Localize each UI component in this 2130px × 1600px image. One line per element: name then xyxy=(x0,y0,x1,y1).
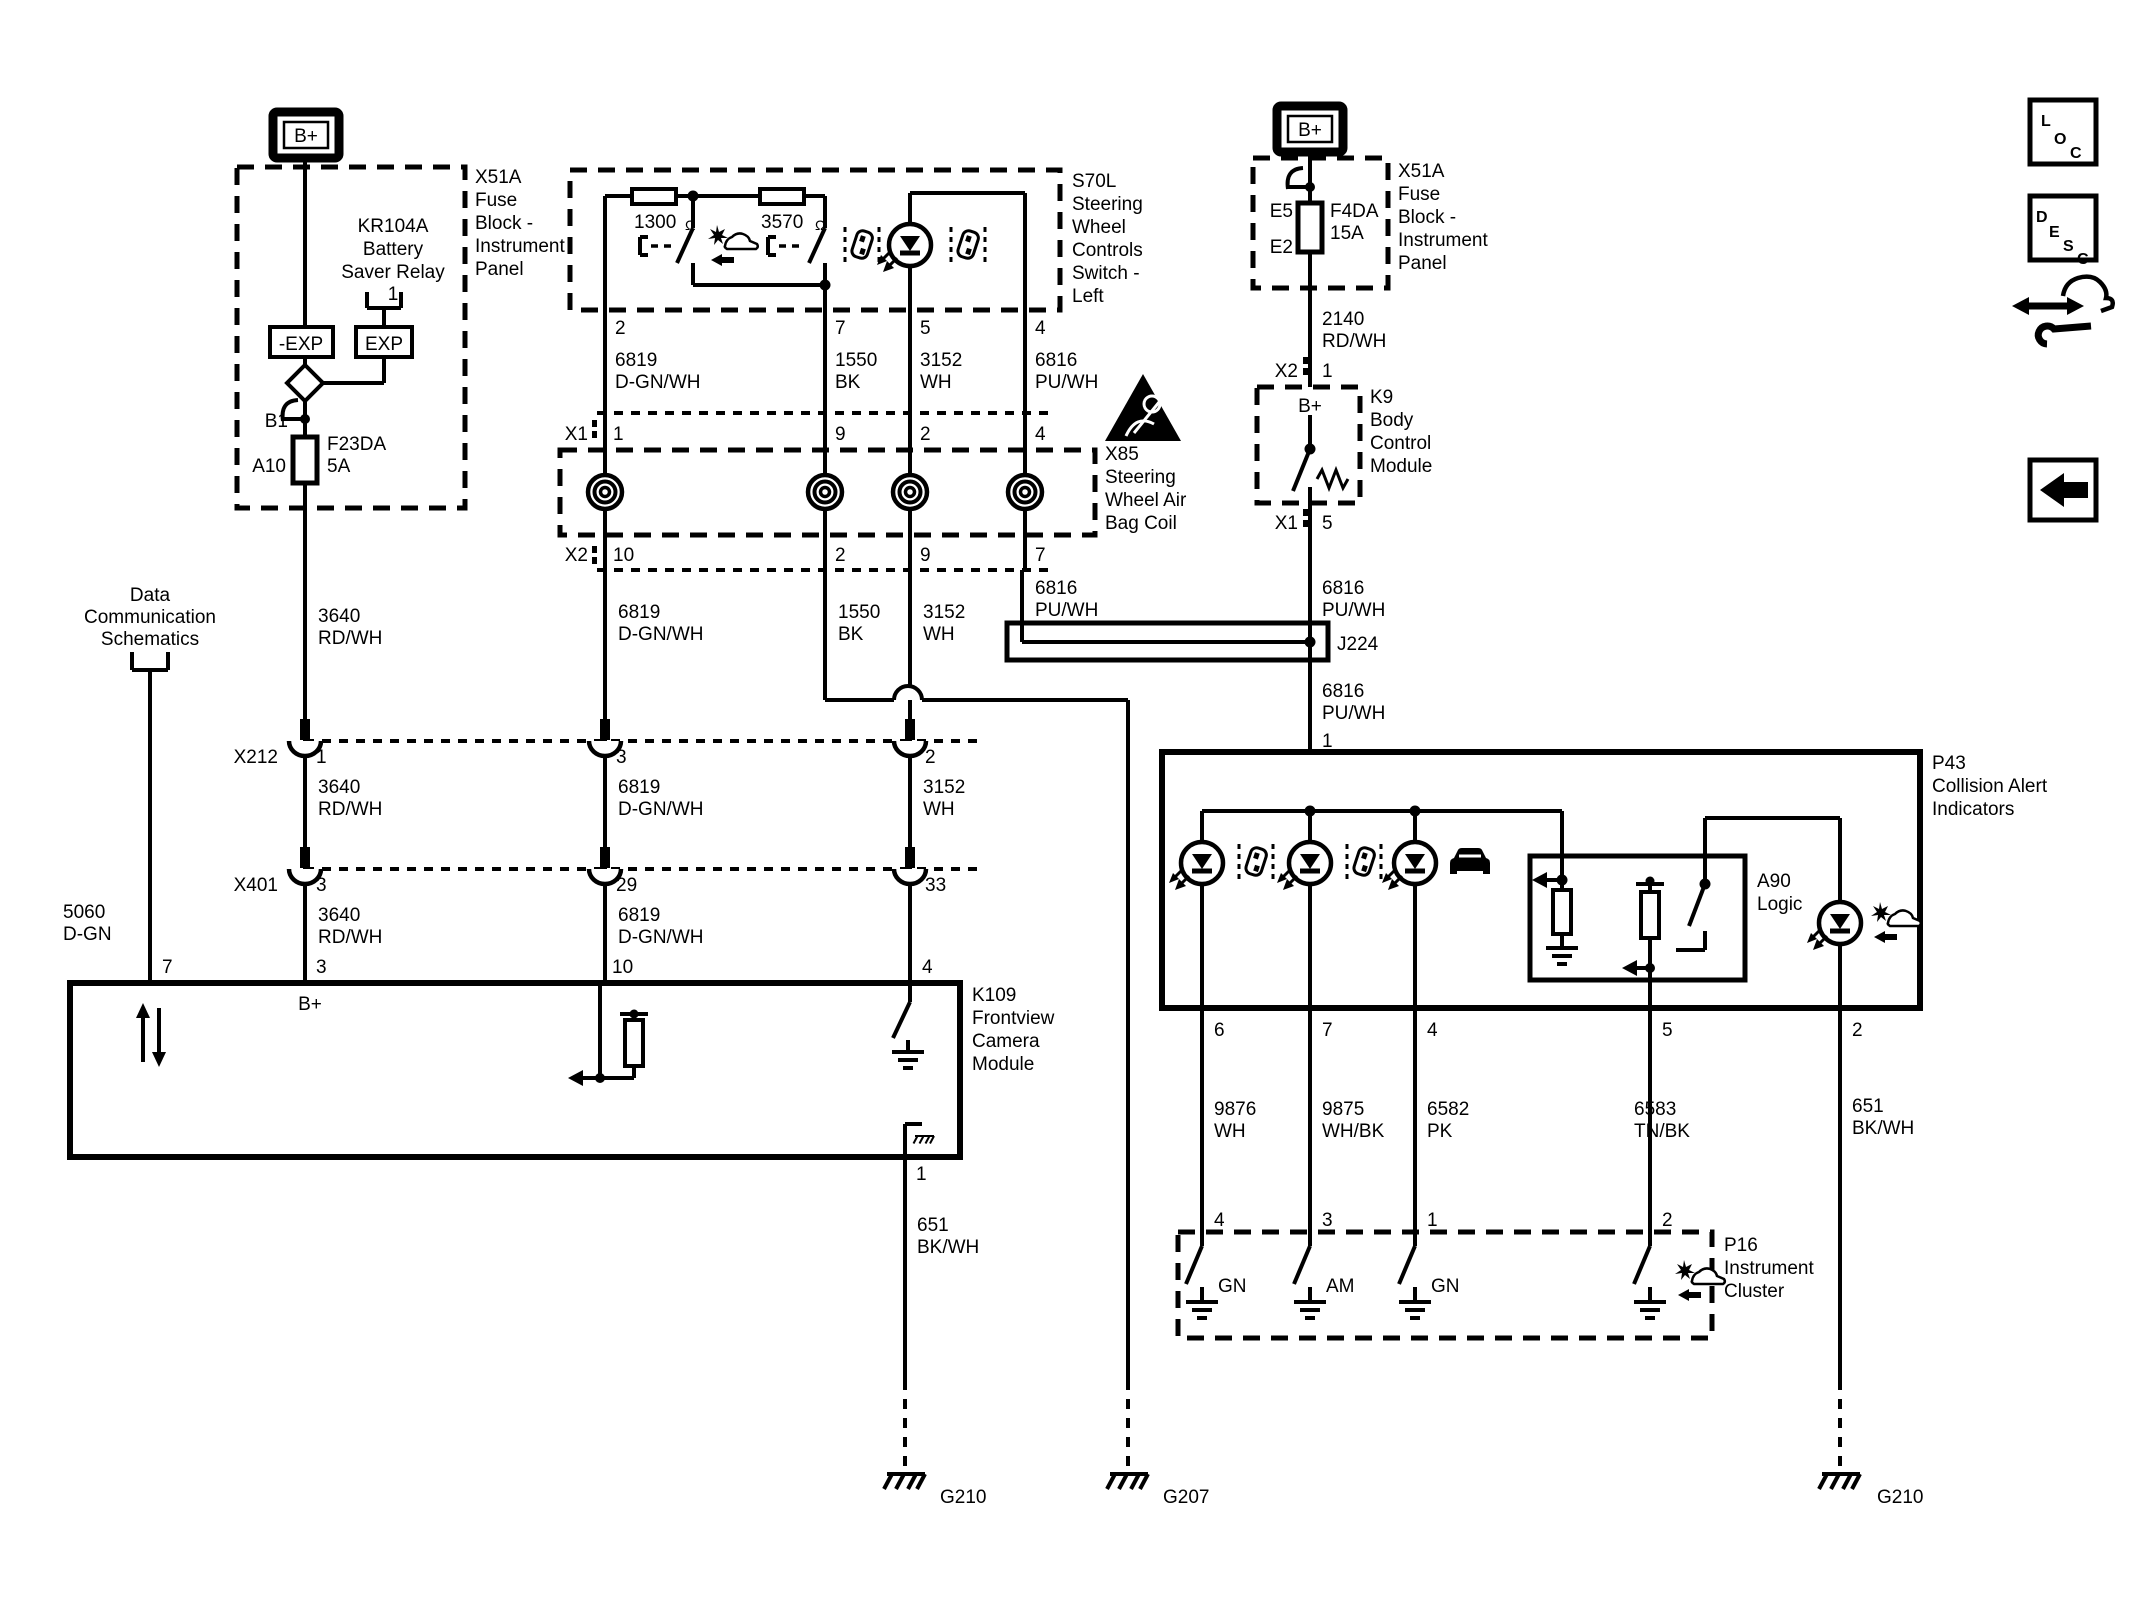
svg-text:3152: 3152 xyxy=(923,777,965,798)
svg-text:WH/BK: WH/BK xyxy=(1322,1121,1385,1142)
pin-number: 5 xyxy=(1322,513,1333,534)
wire-label: 5060 xyxy=(63,902,105,923)
svg-text:2: 2 xyxy=(920,424,931,445)
fuse-block-right-label: X51A xyxy=(1398,161,1445,182)
j224-label: J224 xyxy=(1337,634,1379,655)
wire-label: 2140 xyxy=(1322,309,1364,330)
x85-label: X85 xyxy=(1105,444,1139,465)
svg-text:33: 33 xyxy=(925,875,946,896)
svg-text:Wheel Air: Wheel Air xyxy=(1105,490,1187,511)
svg-text:Bag Coil: Bag Coil xyxy=(1105,513,1177,534)
airbag-warning-icon xyxy=(1105,374,1181,441)
pin-number: 1 xyxy=(316,747,327,768)
earth-ground-icon xyxy=(1546,948,1578,964)
k9-x2-label: X2 xyxy=(1275,361,1298,382)
x401-connector-icon xyxy=(894,847,926,884)
loc-letter: C xyxy=(2070,145,2082,162)
vehicle-ahead-icon xyxy=(1450,848,1490,874)
svg-text:WH: WH xyxy=(923,799,955,820)
fuse-name-label: F4DA xyxy=(1330,201,1379,222)
earth-ground-icon xyxy=(1634,1302,1666,1318)
relay-label: KR104A xyxy=(358,216,429,237)
svg-text:6816: 6816 xyxy=(1322,681,1364,702)
ground-g207-icon xyxy=(1107,1474,1148,1489)
x401-label: X401 xyxy=(234,875,278,896)
svg-text:Control: Control xyxy=(1370,433,1431,454)
pin-number: 4 xyxy=(1214,1210,1225,1231)
b-plus-terminal-right: B+ xyxy=(1277,106,1343,152)
fuse-pin-label: E5 xyxy=(1270,201,1293,222)
svg-text:Panel: Panel xyxy=(475,259,524,280)
b-plus-terminal-left: B+ xyxy=(273,112,339,158)
desc-letter: E xyxy=(2049,224,2060,241)
svg-text:D-GN: D-GN xyxy=(63,924,112,945)
svg-text:WH: WH xyxy=(920,372,952,393)
svg-text:6819: 6819 xyxy=(618,777,660,798)
svg-text:Module: Module xyxy=(1370,456,1432,477)
svg-text:6816: 6816 xyxy=(1035,578,1077,599)
svg-text:Collision Alert: Collision Alert xyxy=(1932,776,2048,797)
svg-text:7: 7 xyxy=(1322,1020,1333,1041)
svg-text:Module: Module xyxy=(972,1054,1034,1075)
svg-text:9: 9 xyxy=(920,545,931,566)
airbag-coil-icon xyxy=(893,475,927,509)
led-indicator-icon xyxy=(1169,842,1223,890)
svg-text:BK: BK xyxy=(838,624,864,645)
svg-text:Body: Body xyxy=(1370,410,1414,431)
pin-number: 2 xyxy=(615,318,626,339)
svg-text:7: 7 xyxy=(1035,545,1046,566)
svg-text:PU/WH: PU/WH xyxy=(1035,600,1098,621)
svg-text:D-GN/WH: D-GN/WH xyxy=(615,372,700,393)
ground-g210-left-icon xyxy=(884,1474,925,1489)
svg-text:Fuse: Fuse xyxy=(1398,184,1440,205)
switch-actuator-icon xyxy=(640,237,673,255)
svg-text:Indicators: Indicators xyxy=(1932,799,2014,820)
collision-alert-icon xyxy=(708,225,758,266)
svg-text:2: 2 xyxy=(835,545,846,566)
x212-label: X212 xyxy=(234,747,278,768)
b-plus-label: B+ xyxy=(1298,120,1322,141)
earth-ground-icon xyxy=(1399,1302,1431,1318)
fuse-rating-label: 15A xyxy=(1330,223,1364,244)
j224-junction-dot xyxy=(1305,637,1316,648)
wiring-diagram: B+ B+ -EXP EXP xyxy=(0,0,2130,1595)
svg-text:4: 4 xyxy=(1035,424,1046,445)
earth-ground-icon xyxy=(1186,1302,1218,1318)
svg-text:1: 1 xyxy=(1427,1210,1438,1231)
svg-text:5: 5 xyxy=(920,318,931,339)
svg-text:WH: WH xyxy=(1214,1121,1246,1142)
svg-text:Saver Relay: Saver Relay xyxy=(341,262,445,283)
airbag-coil-icon xyxy=(808,475,842,509)
svg-text:D-GN/WH: D-GN/WH xyxy=(618,624,703,645)
neg-exp-label: -EXP xyxy=(279,334,323,355)
svg-text:RD/WH: RD/WH xyxy=(318,927,382,948)
k9-internals xyxy=(1293,444,1348,492)
k109-label: K109 xyxy=(972,985,1016,1006)
svg-text:Frontview: Frontview xyxy=(972,1008,1055,1029)
x2-label: X2 xyxy=(565,545,588,566)
svg-text:RD/WH: RD/WH xyxy=(1322,331,1386,352)
svg-text:6819: 6819 xyxy=(618,905,660,926)
collision-alert-icon xyxy=(1871,902,1921,943)
desc-letter: S xyxy=(2063,238,2074,255)
pin-number: 7 xyxy=(162,957,173,978)
svg-text:Schematics: Schematics xyxy=(101,629,199,650)
svg-text:Wheel: Wheel xyxy=(1072,217,1126,238)
earth-ground-icon xyxy=(1294,1302,1326,1318)
k109-box xyxy=(70,983,960,1157)
p16-label: P16 xyxy=(1724,1235,1758,1256)
resistor-1300 xyxy=(632,189,676,204)
svg-text:Steering: Steering xyxy=(1105,467,1176,488)
svg-text:3: 3 xyxy=(1322,1210,1333,1231)
b-plus-label: B+ xyxy=(1298,396,1322,417)
ground-g210-right-icon xyxy=(1819,1474,1860,1489)
desc-button[interactable]: D E S C xyxy=(2030,196,2096,268)
p43-label: P43 xyxy=(1932,753,1966,774)
svg-text:TN/BK: TN/BK xyxy=(1634,1121,1690,1142)
svg-text:Camera: Camera xyxy=(972,1031,1040,1052)
svg-text:D-GN/WH: D-GN/WH xyxy=(618,927,703,948)
switch-actuator-icon xyxy=(768,237,801,255)
svg-text:5: 5 xyxy=(1662,1020,1673,1041)
k109-internals xyxy=(136,1003,934,1144)
svg-text:3: 3 xyxy=(316,875,327,896)
svg-text:4: 4 xyxy=(1035,318,1046,339)
svg-text:Ω: Ω xyxy=(685,217,695,233)
collision-alert-icon xyxy=(1675,1260,1725,1301)
svg-text:D-GN/WH: D-GN/WH xyxy=(618,799,703,820)
wire-hop xyxy=(894,686,922,700)
svg-text:9875: 9875 xyxy=(1322,1099,1364,1120)
data-comm-label: Data xyxy=(130,585,171,606)
svg-text:1550: 1550 xyxy=(838,602,880,623)
segment-label: GN xyxy=(1218,1276,1247,1297)
svg-text:PK: PK xyxy=(1427,1121,1453,1142)
svg-text:2: 2 xyxy=(1852,1020,1863,1041)
wire-label: 6819 xyxy=(618,602,660,623)
desc-letter: D xyxy=(2036,209,2048,226)
lane-departure-icon xyxy=(1347,844,1381,880)
svg-text:E2: E2 xyxy=(1270,237,1293,258)
ground-label: G210 xyxy=(940,1487,986,1508)
lane-departure-icon xyxy=(1239,844,1273,880)
x212-connector-icon xyxy=(894,719,926,756)
led-indicator-icon xyxy=(1277,842,1331,890)
svg-text:BK/WH: BK/WH xyxy=(1852,1118,1914,1139)
svg-text:3640: 3640 xyxy=(318,905,360,926)
lane-departure-icon xyxy=(951,227,985,263)
fuse-pin-label: A10 xyxy=(252,456,286,477)
svg-text:2: 2 xyxy=(1662,1210,1673,1231)
x1-label: X1 xyxy=(565,424,588,445)
s70l-label: S70L xyxy=(1072,171,1116,192)
data-comm-bracket xyxy=(132,652,168,674)
component-boxes xyxy=(70,158,1920,1338)
fuse-rating-label: 5A xyxy=(327,456,351,477)
b-plus-label: B+ xyxy=(294,126,318,147)
vehicle-service-icon[interactable] xyxy=(2012,277,2113,344)
svg-text:Communication: Communication xyxy=(84,607,216,628)
chassis-ground-icon xyxy=(914,1136,935,1144)
led-indicator-icon xyxy=(1807,902,1861,950)
svg-text:6583: 6583 xyxy=(1634,1099,1676,1120)
k9-label: K9 xyxy=(1370,387,1393,408)
wire-label: 651 xyxy=(917,1215,949,1236)
airbag-coil-icon xyxy=(588,475,622,509)
wire-label: 6816 xyxy=(1322,578,1364,599)
symbols: B+ B+ -EXP EXP xyxy=(132,100,2113,1489)
loc-button[interactable]: L O C xyxy=(2030,100,2096,164)
led-indicator-icon xyxy=(877,224,931,272)
svg-text:RD/WH: RD/WH xyxy=(318,628,382,649)
svg-text:Ω: Ω xyxy=(815,217,825,233)
text-labels: X51A Fuse Block - Instrument Panel KR104… xyxy=(63,161,2048,1508)
back-button[interactable] xyxy=(2030,460,2096,520)
svg-text:3152: 3152 xyxy=(923,602,965,623)
svg-text:9: 9 xyxy=(835,424,846,445)
back-arrow-icon xyxy=(2040,473,2088,507)
svg-text:1: 1 xyxy=(388,284,399,305)
wire-label: 9876 xyxy=(1214,1099,1256,1120)
svg-text:GN: GN xyxy=(1431,1276,1460,1297)
svg-text:6816: 6816 xyxy=(1035,350,1077,371)
svg-text:29: 29 xyxy=(616,875,637,896)
svg-text:AM: AM xyxy=(1326,1276,1355,1297)
svg-text:Block -: Block - xyxy=(475,213,533,234)
svg-text:Controls: Controls xyxy=(1072,240,1143,261)
exp-label: EXP xyxy=(365,334,403,355)
svg-text:1550: 1550 xyxy=(835,350,877,371)
led-indicator-icon xyxy=(1382,842,1436,890)
svg-text:Block -: Block - xyxy=(1398,207,1456,228)
wrench-icon xyxy=(2038,326,2091,344)
p43-internals xyxy=(1169,806,1921,977)
airbag-coil-icon xyxy=(1008,475,1042,509)
svg-text:Cluster: Cluster xyxy=(1724,1281,1785,1302)
wiring-lines xyxy=(150,152,1840,1470)
svg-text:Logic: Logic xyxy=(1757,894,1802,915)
svg-text:1: 1 xyxy=(613,424,624,445)
wire-label: 6819 xyxy=(615,350,657,371)
svg-text:651: 651 xyxy=(1852,1096,1884,1117)
svg-text:G210: G210 xyxy=(1877,1487,1923,1508)
pin-number: 6 xyxy=(1214,1020,1225,1041)
fuse-pin-label: B1 xyxy=(265,411,288,432)
svg-text:Instrument: Instrument xyxy=(475,236,565,257)
desc-letter: C xyxy=(2077,251,2089,268)
resistor-value: 3570 xyxy=(761,212,803,233)
fuse-block-left-label: X51A xyxy=(475,167,522,188)
svg-text:BK/WH: BK/WH xyxy=(917,1237,979,1258)
svg-text:3: 3 xyxy=(616,747,627,768)
svg-text:7: 7 xyxy=(835,318,846,339)
svg-text:4: 4 xyxy=(922,957,933,978)
svg-text:WH: WH xyxy=(923,624,955,645)
lane-departure-icon xyxy=(845,227,879,263)
svg-text:BK: BK xyxy=(835,372,861,393)
svg-text:4: 4 xyxy=(1427,1020,1438,1041)
svg-text:Battery: Battery xyxy=(363,239,424,260)
svg-text:Instrument: Instrument xyxy=(1724,1258,1814,1279)
loc-letter: L xyxy=(2041,113,2051,130)
wire-label: 3640 xyxy=(318,606,360,627)
k9-x1-label: X1 xyxy=(1275,513,1298,534)
svg-text:G207: G207 xyxy=(1163,1487,1209,1508)
b-plus-label: B+ xyxy=(298,994,322,1015)
resistor-3570 xyxy=(760,189,804,204)
svg-text:PU/WH: PU/WH xyxy=(1322,600,1385,621)
pin-number: 1 xyxy=(1322,361,1333,382)
svg-text:3640: 3640 xyxy=(318,777,360,798)
wiring-diagram-page: B+ B+ -EXP EXP xyxy=(0,0,2130,1595)
a90-label: A90 xyxy=(1757,871,1791,892)
svg-text:Instrument: Instrument xyxy=(1398,230,1488,251)
svg-text:Left: Left xyxy=(1072,286,1104,307)
svg-text:10: 10 xyxy=(613,545,634,566)
svg-text:3: 3 xyxy=(316,957,327,978)
svg-text:Panel: Panel xyxy=(1398,253,1447,274)
svg-text:6582: 6582 xyxy=(1427,1099,1469,1120)
svg-text:2: 2 xyxy=(925,747,936,768)
svg-text:Steering: Steering xyxy=(1072,194,1143,215)
earth-ground-icon xyxy=(892,1052,924,1068)
pin-number: 1 xyxy=(916,1164,927,1185)
svg-text:PU/WH: PU/WH xyxy=(1035,372,1098,393)
loc-letter: O xyxy=(2054,131,2066,148)
svg-text:Switch -: Switch - xyxy=(1072,263,1140,284)
svg-text:PU/WH: PU/WH xyxy=(1322,703,1385,724)
svg-text:10: 10 xyxy=(612,957,633,978)
fuse-name-label: F23DA xyxy=(327,434,386,455)
svg-text:RD/WH: RD/WH xyxy=(318,799,382,820)
svg-text:3152: 3152 xyxy=(920,350,962,371)
s70l-internals xyxy=(632,189,985,291)
resistor-value: 1300 xyxy=(634,212,676,233)
svg-text:Fuse: Fuse xyxy=(475,190,517,211)
pin-number: 1 xyxy=(1322,731,1333,752)
